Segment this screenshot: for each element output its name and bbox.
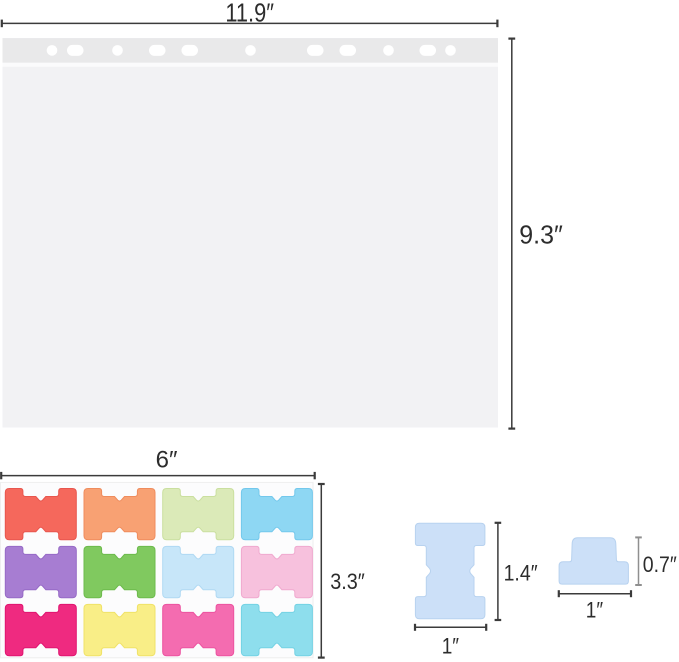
- svg-text:9.3″: 9.3″: [519, 220, 563, 250]
- svg-text:6″: 6″: [156, 446, 178, 473]
- svg-text:1″: 1″: [442, 634, 459, 659]
- svg-text:3.3″: 3.3″: [330, 569, 365, 594]
- svg-text:1″: 1″: [586, 598, 603, 623]
- svg-text:1.4″: 1.4″: [504, 561, 538, 586]
- svg-text:0.7″: 0.7″: [643, 552, 677, 577]
- svg-text:11.9″: 11.9″: [225, 0, 274, 27]
